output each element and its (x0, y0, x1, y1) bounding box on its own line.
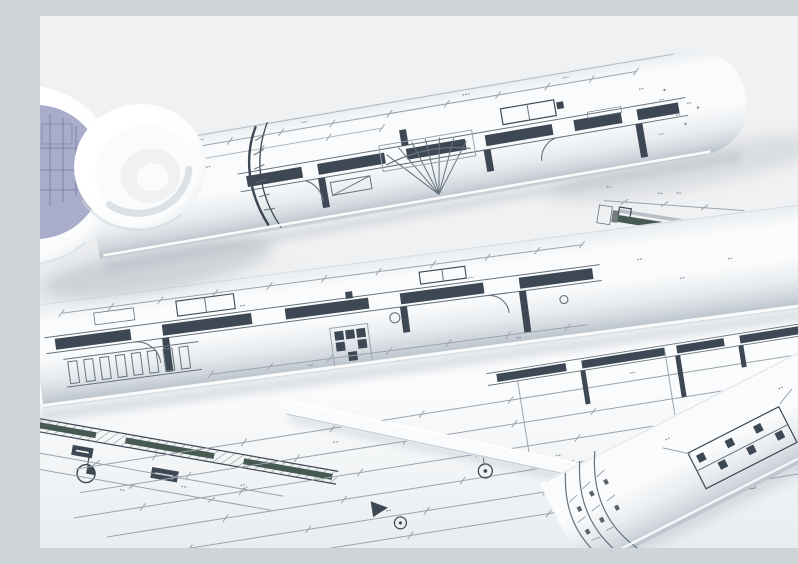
blueprint-photo-svg: Photograph of several rolled architectur… (40, 16, 798, 548)
blueprint-photo: Photograph of several rolled architectur… (40, 16, 798, 548)
